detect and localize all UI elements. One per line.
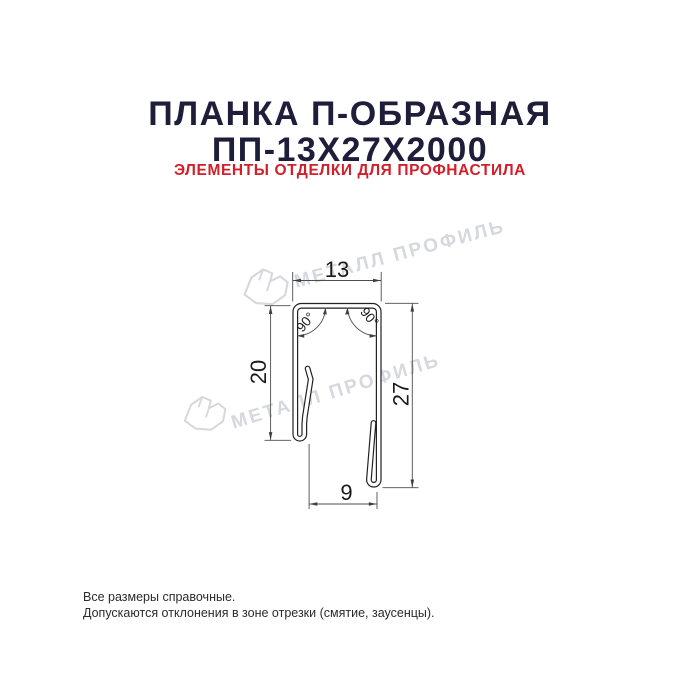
page-root: ПЛАНКА П-ОБРАЗНАЯ ПП-13Х27Х2000 ЭЛЕМЕНТЫ… — [0, 0, 700, 700]
dimension-label-13: 13 — [325, 257, 349, 282]
dimension-label-9: 9 — [340, 480, 352, 505]
title-line1: ПЛАНКА П-ОБРАЗНАЯ — [148, 95, 551, 133]
page-subtitle: ЭЛЕМЕНТЫ ОТДЕЛКИ ДЛЯ ПРОФНАСТИЛА — [0, 162, 700, 180]
footer-notes: Все размеры справочные. Допускаются откл… — [83, 589, 435, 621]
dimension-label-20: 20 — [246, 360, 271, 384]
footer-line1: Все размеры справочные. — [83, 589, 435, 605]
dimension-label-27: 27 — [389, 382, 414, 406]
page-title: ПЛАНКА П-ОБРАЗНАЯ ПП-13Х27Х2000 — [0, 96, 700, 168]
profile-outline — [295, 306, 378, 485]
footer-line2: Допускаются отклонения в зоне отрезки (с… — [83, 605, 435, 621]
